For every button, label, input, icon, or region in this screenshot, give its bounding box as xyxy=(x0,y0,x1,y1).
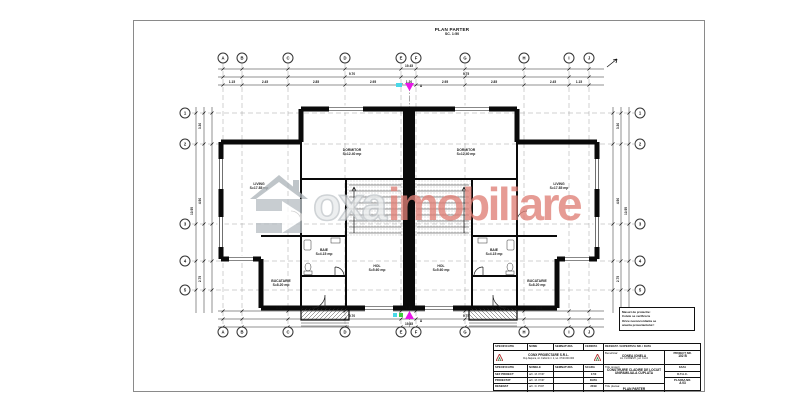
dimension-label: 19.45 xyxy=(405,64,413,68)
grid-axis-bubble: A xyxy=(218,327,229,338)
grid-axis-bubble: I xyxy=(564,53,575,64)
tb-proiect-nr-value: 102 B xyxy=(666,355,699,359)
grid-axis-bubble: 2 xyxy=(180,139,191,150)
room-label: DORMITORS=12.40 mp xyxy=(457,148,476,157)
dimension-label: 2.85 xyxy=(313,80,319,84)
dimension-label: 2.75 xyxy=(616,276,620,282)
dimension-label: 2.45 xyxy=(262,80,268,84)
tb-desenat-name: arh. D. POP xyxy=(528,384,554,392)
floor-plan-screenshot: PLAN PARTER SC. 1:50 DORMITORS=12.40 mpL… xyxy=(0,0,800,408)
dimension-label: 4.90 xyxy=(198,198,202,204)
sheet-title: PLAN PARTER SC. 1:50 xyxy=(435,27,470,36)
dimension-label: 9.75 xyxy=(463,72,469,76)
firm-logo-icon xyxy=(496,354,503,361)
grid-axis-bubble: J xyxy=(584,53,595,64)
tb-plansa-label: Titlu plansa: xyxy=(605,384,620,388)
dimension-label: 4.25 xyxy=(536,306,542,310)
room-label: HOLS=5.60 mp xyxy=(433,264,450,273)
room-label: LIVINGS=17.85 mp xyxy=(250,182,269,191)
tb-plansa-nr-value: A 03 xyxy=(666,382,699,386)
tb-firm-cell: CONX PROIECTARE S.R.L. Cluj-Napoca, str.… xyxy=(494,351,604,365)
grid-axis-bubble: 5 xyxy=(180,285,191,296)
tb-plansa-title-value: PLAN PARTER xyxy=(605,388,663,392)
tb-plansa-nr-cell: PLANSA NR. A 03 xyxy=(665,378,700,392)
tb-data-value: 2019 xyxy=(584,384,604,392)
grid-axis-bubble: B xyxy=(237,327,248,338)
tb-beneficiar-cell: Beneficiar: CONEA IONELA loc. FLORESTI, … xyxy=(604,351,665,365)
grid-axis-bubble: F xyxy=(411,327,422,338)
tb-desenat-label: DESENAT xyxy=(494,384,528,392)
grid-axis-bubble: C xyxy=(283,327,294,338)
dimension-label: 2.95 xyxy=(442,80,448,84)
note-line: anunta proiectantului ! xyxy=(622,323,692,328)
tb-titlu-proiect-value: CONSTRUIRE CLADIRE DE LOCUIT UNIFAMILIAL… xyxy=(605,369,663,376)
tb-scara-label: SCARA xyxy=(584,365,604,372)
dimension-label: 4.25 xyxy=(276,306,282,310)
dimension-label: 2.95 xyxy=(370,80,376,84)
grid-axis-bubble: E xyxy=(396,53,407,64)
grid-axis-bubble: 1 xyxy=(180,108,191,119)
tb-beneficiar-address: loc. FLORESTI, jud. CLUJ xyxy=(605,358,663,361)
room-label: DORMITORS=12.40 mp xyxy=(343,148,362,157)
sheet-title-scale: SC. 1:50 xyxy=(435,32,470,36)
dimension-label: 9.70 xyxy=(349,72,355,76)
dimension-label: 19.45 xyxy=(405,322,413,326)
drawing-sheet: PLAN PARTER SC. 1:50 DORMITORS=12.40 mpL… xyxy=(133,20,705,392)
party-wall xyxy=(403,107,415,311)
dimension-label: 2.40 xyxy=(490,306,496,310)
dimension-label: 3.30 xyxy=(198,123,202,129)
dimension-label: A xyxy=(420,319,422,323)
room-label: LIVINGS=17.85 mp xyxy=(550,182,569,191)
tb-specificatie2-header: SPECIFICATIE xyxy=(494,365,528,372)
note-box: Masuri de protectie: Cotele se verifica … xyxy=(619,307,695,331)
dimension-label: 3.30 xyxy=(616,123,620,129)
dimension-label: 9.70 xyxy=(349,314,355,318)
dimension-label: 9.75 xyxy=(463,314,469,318)
title-block: SPECIFICATIE NUME SEMNATURA CERINTA REFE… xyxy=(493,343,701,391)
north-arrow-icon xyxy=(607,59,617,67)
dimension-label: 1.85 xyxy=(406,306,412,310)
grid-axis-bubble: H xyxy=(519,327,530,338)
tb-desenat-signature xyxy=(554,384,584,392)
section-marker-top xyxy=(396,83,414,91)
tb-proiect-title-cell: Titlu proiect: CONSTRUIRE CLADIRE DE LOC… xyxy=(604,365,665,384)
tb-numele-header: NUMELE xyxy=(528,365,554,372)
grid-axis-bubble: G xyxy=(460,53,471,64)
tb-plansa-title-cell: Titlu plansa: PLAN PARTER xyxy=(604,384,665,392)
dimension-label: 1.20 xyxy=(406,80,412,84)
grid-axis-bubble: 4 xyxy=(635,256,646,267)
tb-cerinta-header: CERINTA xyxy=(584,344,604,351)
room-label: BAIES=4.15 mp xyxy=(316,248,333,257)
tb-beneficiar-label: Beneficiar: xyxy=(605,351,618,355)
tb-specificatie-header: SPECIFICATIE xyxy=(494,344,528,351)
tb-firm-sub: Cluj-Napoca, str. Fabricii nr. 2, tel. 0… xyxy=(503,358,594,361)
dimension-label: 1.15 xyxy=(576,80,582,84)
dimension-label: 10.95 xyxy=(624,207,628,215)
room-label: BAIES=4.15 mp xyxy=(486,248,503,257)
dimension-label: 2.85 xyxy=(491,80,497,84)
dimension-label: 2.40 xyxy=(322,306,328,310)
grid-axis-bubble: I xyxy=(564,327,575,338)
grid-axis-bubble: 4 xyxy=(180,256,191,267)
grid-axis-bubble: E xyxy=(396,327,407,338)
grid-axis-bubble: C xyxy=(283,53,294,64)
room-label: BUCATARIES=8.20 mp xyxy=(527,279,546,288)
grid-axis-bubble: 3 xyxy=(180,219,191,230)
section-marker-bottom xyxy=(393,311,414,319)
room-label: HOLS=5.60 mp xyxy=(369,264,386,273)
dimension-label: 2.75 xyxy=(198,276,202,282)
grid-axis-bubble: A xyxy=(218,53,229,64)
grid-axis-bubble: D xyxy=(340,53,351,64)
grid-axis-bubble: 1 xyxy=(635,108,646,119)
grid-axis-bubble: 5 xyxy=(635,285,646,296)
grid-axis-bubble: G xyxy=(460,327,471,338)
tb-semnatura-header: SEMNATURA xyxy=(554,344,584,351)
grid-axis-bubble: F xyxy=(411,53,422,64)
grid-axis-bubble: 2 xyxy=(635,139,646,150)
tb-semnatura2-header: SEMNATURA xyxy=(554,365,584,372)
dimension-label: 1.15 xyxy=(229,80,235,84)
dimension-label: 2.45 xyxy=(550,80,556,84)
tb-proiect-nr-cell: PROIECT NR. 102 B xyxy=(665,351,700,365)
room-label: BUCATARIES=8.20 mp xyxy=(271,279,290,288)
tb-faza-label: FAZA xyxy=(665,365,700,372)
grid-axis-bubble: J xyxy=(584,327,595,338)
grid-axis-bubble: H xyxy=(519,53,530,64)
dimension-label: A xyxy=(420,84,422,88)
tb-nume-header: NUME xyxy=(528,344,554,351)
firm-logo-icon xyxy=(594,354,601,361)
grid-axis-bubble: 3 xyxy=(635,219,646,230)
grid-axis-bubble: D xyxy=(340,327,351,338)
grid-axis-bubble: B xyxy=(237,53,248,64)
dimension-label: 10.95 xyxy=(190,207,194,215)
dimension-label: 4.90 xyxy=(616,198,620,204)
tb-referat-header: REFERAT / EXPERTIZA NR. / DATA xyxy=(604,344,700,351)
